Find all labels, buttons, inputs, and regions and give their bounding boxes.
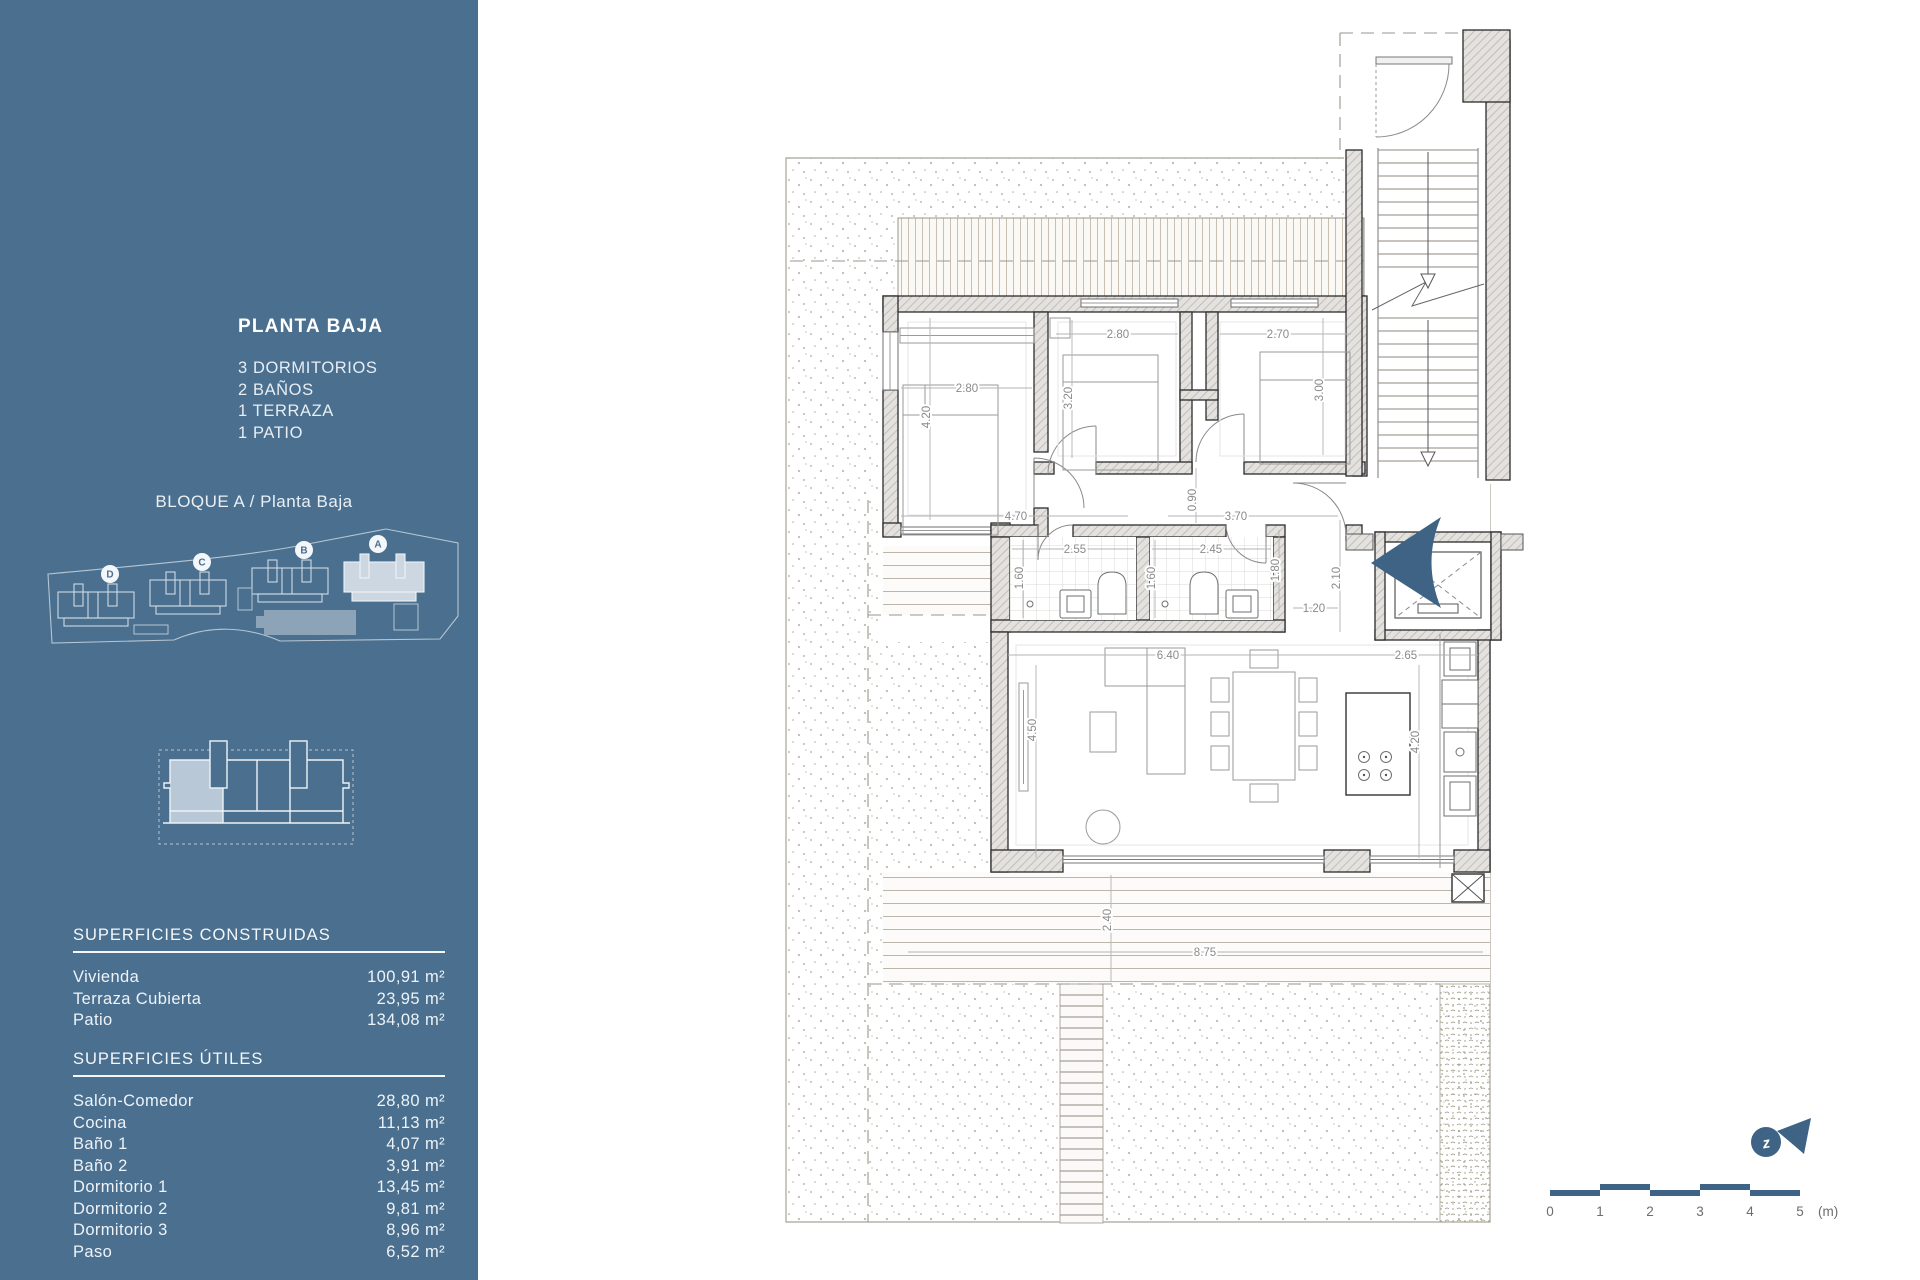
- site-plot: [238, 588, 252, 610]
- site-plot: [134, 625, 168, 634]
- page-title: PLANTA BAJA: [238, 316, 383, 338]
- dim-terrace-width: 8.75: [1194, 947, 1216, 959]
- superficies-utiles-table: SUPERFICIES ÚTILES Salón-Comedor 28,80 m…: [73, 1050, 445, 1263]
- feature-item: 1 TERRAZA: [238, 401, 378, 423]
- badge-d: D: [106, 570, 113, 581]
- table-heading: SUPERFICIES ÚTILES: [73, 1050, 445, 1069]
- table-row: Salón-Comedor 28,80 m²: [73, 1091, 445, 1113]
- hedge-strip: [1440, 984, 1490, 1222]
- sidebar: PLANTA BAJA 3 DORMITORIOS 2 BAÑOS 1 TERR…: [0, 0, 478, 1280]
- table-row: Dormitorio 1 13,45 m²: [73, 1177, 445, 1199]
- scale-tick-2: 2: [1646, 1204, 1654, 1219]
- dim-hall-east: 3.70: [1225, 511, 1247, 523]
- dim-living-depth: 4.50: [1027, 719, 1039, 741]
- dim-kitchen-depth: 4.20: [1410, 731, 1422, 753]
- feature-list: 3 DORMITORIOS 2 BAÑOS 1 TERRAZA 1 PATIO: [238, 358, 378, 444]
- superficies-construidas-table: SUPERFICIES CONSTRUIDAS Vivienda 100,91 …: [73, 926, 445, 1032]
- scale-tick-1: 1: [1596, 1204, 1604, 1219]
- street-door-leaf: [1376, 57, 1452, 64]
- table-row: Terraza Cubierta 23,95 m²: [73, 989, 445, 1011]
- divider: [73, 951, 445, 953]
- feature-item: 2 BAÑOS: [238, 380, 378, 402]
- badge-c: C: [198, 558, 205, 569]
- apartment-icon: [155, 740, 355, 852]
- brochure-page: PLANTA BAJA 3 DORMITORIOS 2 BAÑOS 1 TERR…: [0, 0, 1920, 1280]
- badge-b: B: [300, 546, 307, 557]
- block-label: BLOQUE A / Planta Baja: [0, 492, 478, 512]
- floor-plan: 2.80 4.20 2.80 3.20 2.70 3.00 4.70 0.90 …: [478, 0, 1920, 1280]
- dim-living-width: 6.40: [1157, 650, 1179, 662]
- table-row: Vivienda 100,91 m²: [73, 967, 445, 989]
- planter: [1501, 534, 1523, 550]
- dim-bedroom1-width: 2.80: [956, 383, 978, 395]
- site-building-c: [150, 572, 226, 614]
- garden-steps: [1060, 984, 1103, 1223]
- dim-bath1-width: 2.55: [1064, 544, 1086, 556]
- feature-item: 3 DORMITORIOS: [238, 358, 378, 380]
- dim-bath1-depth: 1.60: [1014, 567, 1026, 589]
- terrace-deck: [883, 872, 1490, 984]
- site-pool-step: [256, 616, 264, 628]
- side-deck: [883, 546, 991, 615]
- sliding-window: [1063, 856, 1454, 863]
- dim-entry-depth: 2.10: [1331, 567, 1343, 589]
- site-plan-map: D C B A: [42, 520, 466, 660]
- feature-item: 1 PATIO: [238, 423, 378, 445]
- scale-tick-0: 0: [1546, 1204, 1554, 1219]
- planter: [1346, 534, 1373, 550]
- pergola-roof: [898, 218, 1364, 296]
- table-heading: SUPERFICIES CONSTRUIDAS: [73, 926, 445, 945]
- table-row: Dormitorio 3 8,96 m²: [73, 1220, 445, 1242]
- dim-hall-width: 4.70: [1005, 511, 1027, 523]
- dim-bedroom3-width: 2.70: [1267, 329, 1289, 341]
- site-building-b: [252, 560, 328, 602]
- scale-tick-5: 5: [1796, 1204, 1804, 1219]
- dim-bath2-depth: 1.60: [1146, 567, 1158, 589]
- table-row: Patio 134,08 m²: [73, 1010, 445, 1032]
- site-pool: [264, 610, 356, 635]
- site-building-a-highlighted: [344, 554, 424, 601]
- ac-unit: [1452, 874, 1484, 902]
- scale-bar: 0 1 2 3 4 5 (m): [1546, 1184, 1838, 1219]
- dim-bedroom3-depth: 3.00: [1314, 379, 1326, 401]
- table-row: Dormitorio 2 9,81 m²: [73, 1199, 445, 1221]
- site-plot: [394, 604, 418, 630]
- table-row: Baño 2 3,91 m²: [73, 1156, 445, 1178]
- dim-terrace-depth: 2.40: [1102, 909, 1114, 931]
- divider: [73, 1075, 445, 1077]
- table-row: Paso 6,52 m²: [73, 1242, 445, 1264]
- scale-tick-4: 4: [1746, 1204, 1754, 1219]
- north-compass-icon: z: [1751, 1118, 1811, 1157]
- dim-kitchen-width: 2.65: [1395, 650, 1417, 662]
- dim-bath2-width: 2.45: [1200, 544, 1222, 556]
- dim-hall-depth: 0.90: [1187, 489, 1199, 511]
- site-building-d: [58, 584, 134, 626]
- dim-bedroom2-width: 2.80: [1107, 329, 1129, 341]
- scale-unit: (m): [1818, 1204, 1838, 1219]
- badge-a: A: [374, 540, 381, 551]
- dim-entry-width: 1.20: [1303, 603, 1325, 615]
- dim-paso-depth: 1.80: [1270, 559, 1282, 581]
- dim-bedroom2-depth: 3.20: [1063, 387, 1075, 409]
- table-row: Cocina 11,13 m²: [73, 1113, 445, 1135]
- table-row: Baño 1 4,07 m²: [73, 1134, 445, 1156]
- dim-bedroom1-depth: 4.20: [921, 406, 933, 428]
- scale-tick-3: 3: [1696, 1204, 1704, 1219]
